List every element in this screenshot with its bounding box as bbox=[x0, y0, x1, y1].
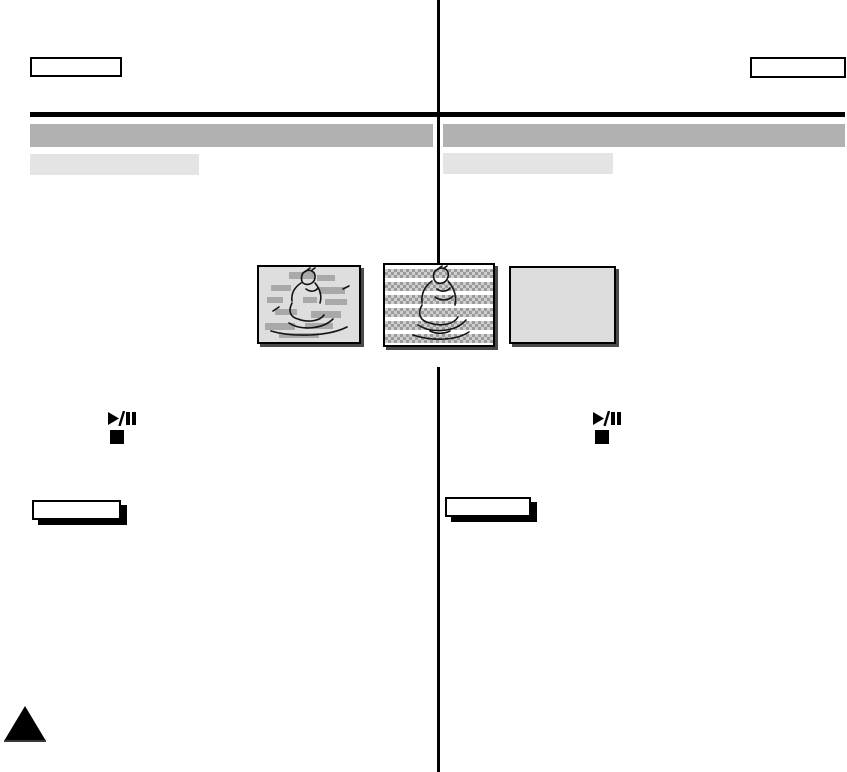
play-pause-icon bbox=[593, 411, 621, 431]
stop-icon bbox=[595, 430, 609, 444]
play-pause-icon bbox=[108, 411, 136, 431]
figure-playback-noise-bands bbox=[383, 263, 495, 347]
page-corner-triangle-base bbox=[4, 740, 46, 742]
header-right-label-box bbox=[750, 57, 846, 78]
section-subtitle-bar-left bbox=[30, 154, 199, 175]
note-box-left bbox=[32, 500, 121, 520]
column-divider-bottom bbox=[437, 367, 440, 772]
figure-blank-screen bbox=[509, 266, 616, 344]
header-left-label-box bbox=[30, 57, 122, 77]
manual-page bbox=[0, 0, 847, 772]
section-title-bar-left bbox=[30, 124, 433, 147]
playback-picture-art bbox=[259, 267, 359, 342]
column-divider-top bbox=[437, 0, 440, 263]
header-rule bbox=[30, 112, 845, 117]
note-box-right bbox=[445, 497, 531, 517]
noise-picture-art bbox=[385, 265, 493, 345]
page-corner-triangle-icon bbox=[4, 706, 46, 741]
section-title-bar-right bbox=[443, 124, 845, 147]
stop-icon bbox=[110, 430, 124, 444]
figure-playback-picture bbox=[257, 265, 361, 344]
section-subtitle-bar-right bbox=[443, 153, 613, 174]
